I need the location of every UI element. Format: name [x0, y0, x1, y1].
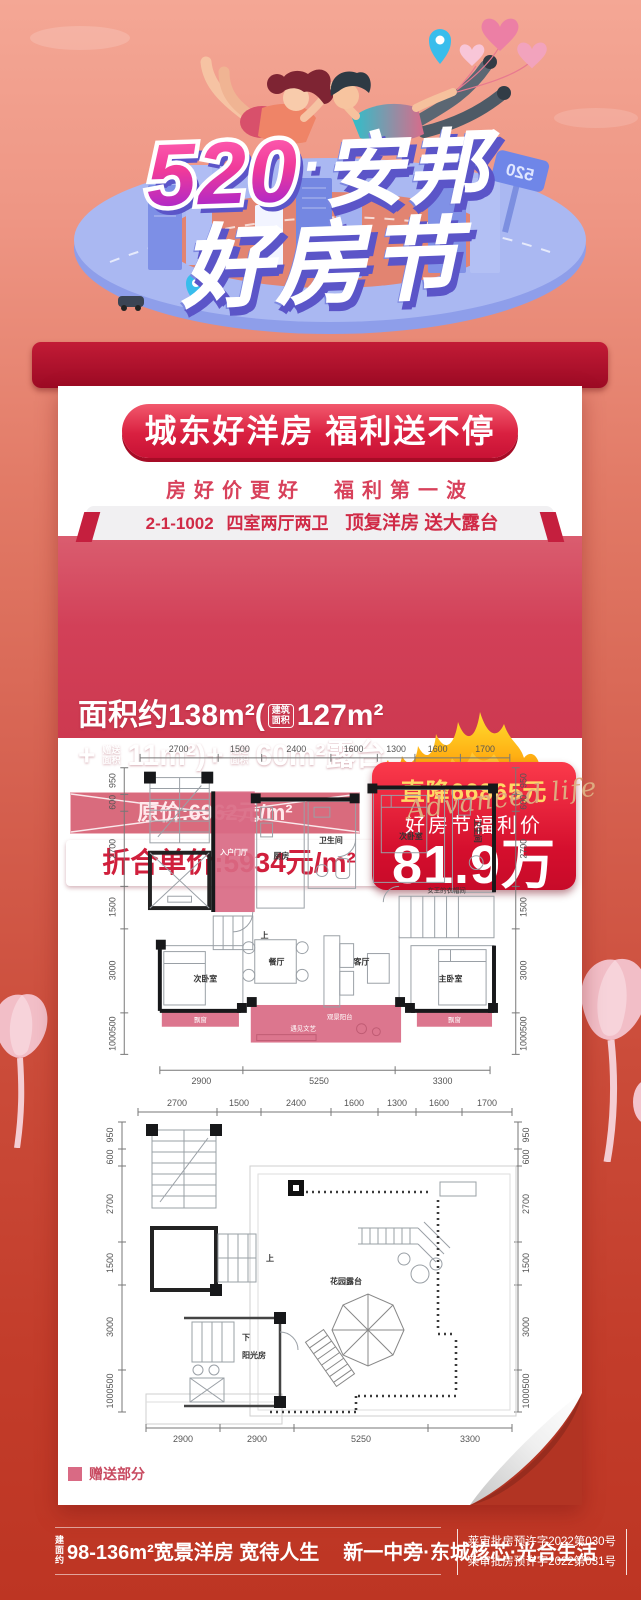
svg-text:2400: 2400 [286, 744, 306, 754]
fp1-walls [150, 778, 494, 1041]
svg-text:2900: 2900 [247, 1434, 267, 1444]
svg-text:客厅: 客厅 [353, 956, 370, 966]
svg-text:1300: 1300 [386, 744, 406, 754]
cloud-shape [30, 26, 130, 50]
svg-text:入户门厅: 入户门厅 [220, 848, 248, 857]
permit-line-2: 莱审批房预许字2022第031号 [468, 1552, 616, 1572]
svg-text:2700: 2700 [521, 1194, 531, 1214]
svg-text:1000500: 1000500 [107, 1016, 117, 1051]
svg-text:950: 950 [105, 1127, 115, 1142]
svg-text:5250: 5250 [351, 1434, 371, 1444]
svg-text:2900: 2900 [191, 1076, 211, 1086]
svg-text:1600: 1600 [344, 1098, 364, 1108]
price-section: 面积约138m²(建筑面积127m² +赠送面积11m²)+赠送面积60m²露台… [58, 536, 582, 738]
tulip-icon [0, 988, 62, 1148]
svg-text:上: 上 [266, 1253, 274, 1263]
svg-text:1700: 1700 [475, 744, 495, 754]
svg-text:1300: 1300 [387, 1098, 407, 1108]
svg-text:花园露台: 花园露台 [330, 1276, 362, 1286]
svg-text:1500: 1500 [107, 897, 117, 917]
legend-swatch [68, 1467, 82, 1481]
pill-ribbon-end [76, 512, 101, 542]
fp2-top-dim-labels: 2700 1500 2400 1600 1300 1600 1700 [167, 1098, 497, 1108]
svg-text:厨房: 厨房 [274, 851, 290, 861]
svg-text:2400: 2400 [286, 1098, 306, 1108]
permit-line-1: 莱审批房预许字2022第030号 [468, 1532, 616, 1552]
fp2-right-dim-labels: 950 600 2700 1500 3000 1000500 [521, 1127, 531, 1408]
svg-text:3000: 3000 [521, 1317, 531, 1337]
footer: 建面约 98-136m²宽景洋房 宽待人生 新一中旁·东城核芯·光合生活 莱审批… [0, 1505, 641, 1600]
svg-text:1500: 1500 [105, 1253, 115, 1273]
fp2-roof-outline [146, 1166, 516, 1424]
svg-text:观景阳台: 观景阳台 [327, 1012, 353, 1021]
svg-text:卫生间: 卫生间 [319, 835, 343, 845]
permit-numbers: 莱审批房预许字2022第030号 莱审批房预许字2022第031号 [457, 1529, 627, 1575]
svg-text:2700: 2700 [519, 839, 529, 859]
footer-slogan-1: 98-136m²宽景洋房 宽待人生 [67, 1536, 319, 1565]
svg-text:3000: 3000 [105, 1317, 115, 1337]
title-number: 520520 [145, 127, 301, 220]
sub-headline: 房好价更好 福利第一波 [58, 474, 582, 503]
headline-banner: 城东好洋房 福利送不停 [122, 404, 518, 458]
fp1-room-labels: 入户门厅 上 厨房 卫生间 次卧室 卫生间 女王的衣帽间 次卧室 餐厅 客厅 主… [193, 819, 483, 1033]
area-line-1: 面积约138m²(建筑面积127m² [78, 696, 386, 736]
svg-text:2700: 2700 [107, 839, 117, 859]
svg-text:1000500: 1000500 [105, 1373, 115, 1408]
svg-text:3300: 3300 [433, 1076, 453, 1086]
fp1-right-dim-labels: 950 600 2700 1500 3000 1000500 [519, 773, 529, 1051]
festival-title: 520520·安邦 好房节 [0, 115, 641, 321]
unit-layout: 四室两厅两卫 [226, 514, 328, 533]
gift-legend: 赠送部分 [68, 1464, 145, 1484]
svg-text:600: 600 [105, 1149, 115, 1164]
fp1-left-dim-labels: 950 600 2700 1500 3000 1000500 [107, 773, 117, 1051]
promo-poster: 520 [0, 0, 641, 1600]
unit-highlight: 顶复洋房 送大露台 [345, 512, 498, 533]
svg-text:5250: 5250 [309, 1076, 329, 1086]
svg-text:2700: 2700 [169, 744, 189, 754]
svg-text:600: 600 [519, 795, 529, 810]
svg-text:1700: 1700 [477, 1098, 497, 1108]
svg-text:1500: 1500 [521, 1253, 531, 1273]
svg-text:2900: 2900 [173, 1434, 193, 1444]
fp1-bottom-dim-labels: 2900 5250 3300 [191, 1076, 452, 1086]
svg-text:阳光房: 阳光房 [242, 1350, 266, 1360]
svg-text:飘窗: 飘窗 [194, 1015, 207, 1024]
fp2-lounge-icon [306, 1330, 355, 1387]
svg-text:1500: 1500 [229, 1098, 249, 1108]
fp1-top-dims [140, 754, 510, 762]
unit-info-pill: 2-1-1002 四室两厅两卫 顶复洋房 送大露台 [86, 506, 554, 540]
unit-code: 2-1-1002 [146, 514, 214, 533]
legend-label: 赠送部分 [89, 1464, 145, 1484]
svg-text:女王的衣帽间: 女王的衣帽间 [427, 885, 465, 894]
fp1-top-dim-labels: 2700 1500 2400 1600 1300 1600 1700 [169, 744, 495, 754]
promo-card: 城东好洋房 福利送不停 房好价更好 福利第一波 2-1-1002 四室两厅两卫 … [58, 386, 582, 1505]
area-tag: 建面约 [55, 1536, 64, 1566]
svg-text:卫生间: 卫生间 [473, 819, 483, 843]
svg-text:1600: 1600 [428, 744, 448, 754]
fp2-left-dim-labels: 950 600 2700 1500 3000 1000500 [105, 1127, 115, 1408]
svg-text:3000: 3000 [519, 960, 529, 980]
svg-text:600: 600 [521, 1149, 531, 1164]
fp2-walls [152, 1130, 450, 1406]
svg-text:950: 950 [519, 773, 529, 788]
footer-slogan-row: 建面约 98-136m²宽景洋房 宽待人生 新一中旁·东城核芯·光合生活 [55, 1527, 441, 1575]
pill-ribbon-end [540, 512, 565, 542]
svg-text:1600: 1600 [429, 1098, 449, 1108]
page-curl-icon [470, 1393, 582, 1505]
svg-text:600: 600 [107, 795, 117, 810]
svg-text:主卧室: 主卧室 [439, 973, 463, 983]
fp1-bottom-dims [160, 1066, 490, 1074]
svg-text:遇见文艺: 遇见文艺 [290, 1024, 316, 1033]
svg-text:餐厅: 餐厅 [268, 956, 285, 966]
build-area-badge: 建筑面积 [268, 704, 294, 728]
svg-text:1500: 1500 [230, 744, 250, 754]
svg-text:下: 下 [242, 1333, 250, 1342]
svg-text:次卧室: 次卧室 [193, 973, 217, 983]
fp2-bottom-dim-labels: 2900 2900 5250 3300 [173, 1434, 480, 1444]
svg-text:950: 950 [107, 773, 117, 788]
title-brand: 安邦 [322, 122, 493, 217]
fp2-bottom-dims [146, 1424, 512, 1432]
svg-text:950: 950 [521, 1127, 531, 1142]
svg-text:1600: 1600 [344, 744, 364, 754]
floor-plan-lower: 2700 1500 2400 1600 1300 1600 1700 950 6… [100, 742, 540, 1090]
svg-text:上: 上 [261, 930, 269, 940]
svg-text:1500: 1500 [519, 897, 529, 917]
svg-text:1000500: 1000500 [519, 1016, 529, 1051]
fp2-terrace-boundary [268, 1192, 456, 1412]
svg-text:2700: 2700 [105, 1194, 115, 1214]
svg-text:2700: 2700 [167, 1098, 187, 1108]
fp2-parasol-icon [332, 1294, 404, 1366]
title-dot: · [300, 132, 322, 200]
svg-text:次卧室: 次卧室 [399, 831, 423, 841]
svg-text:3000: 3000 [107, 960, 117, 980]
svg-text:飘窗: 飘窗 [448, 1015, 461, 1024]
ribbon-banner [32, 342, 608, 388]
fp2-top-dims [138, 1108, 512, 1116]
